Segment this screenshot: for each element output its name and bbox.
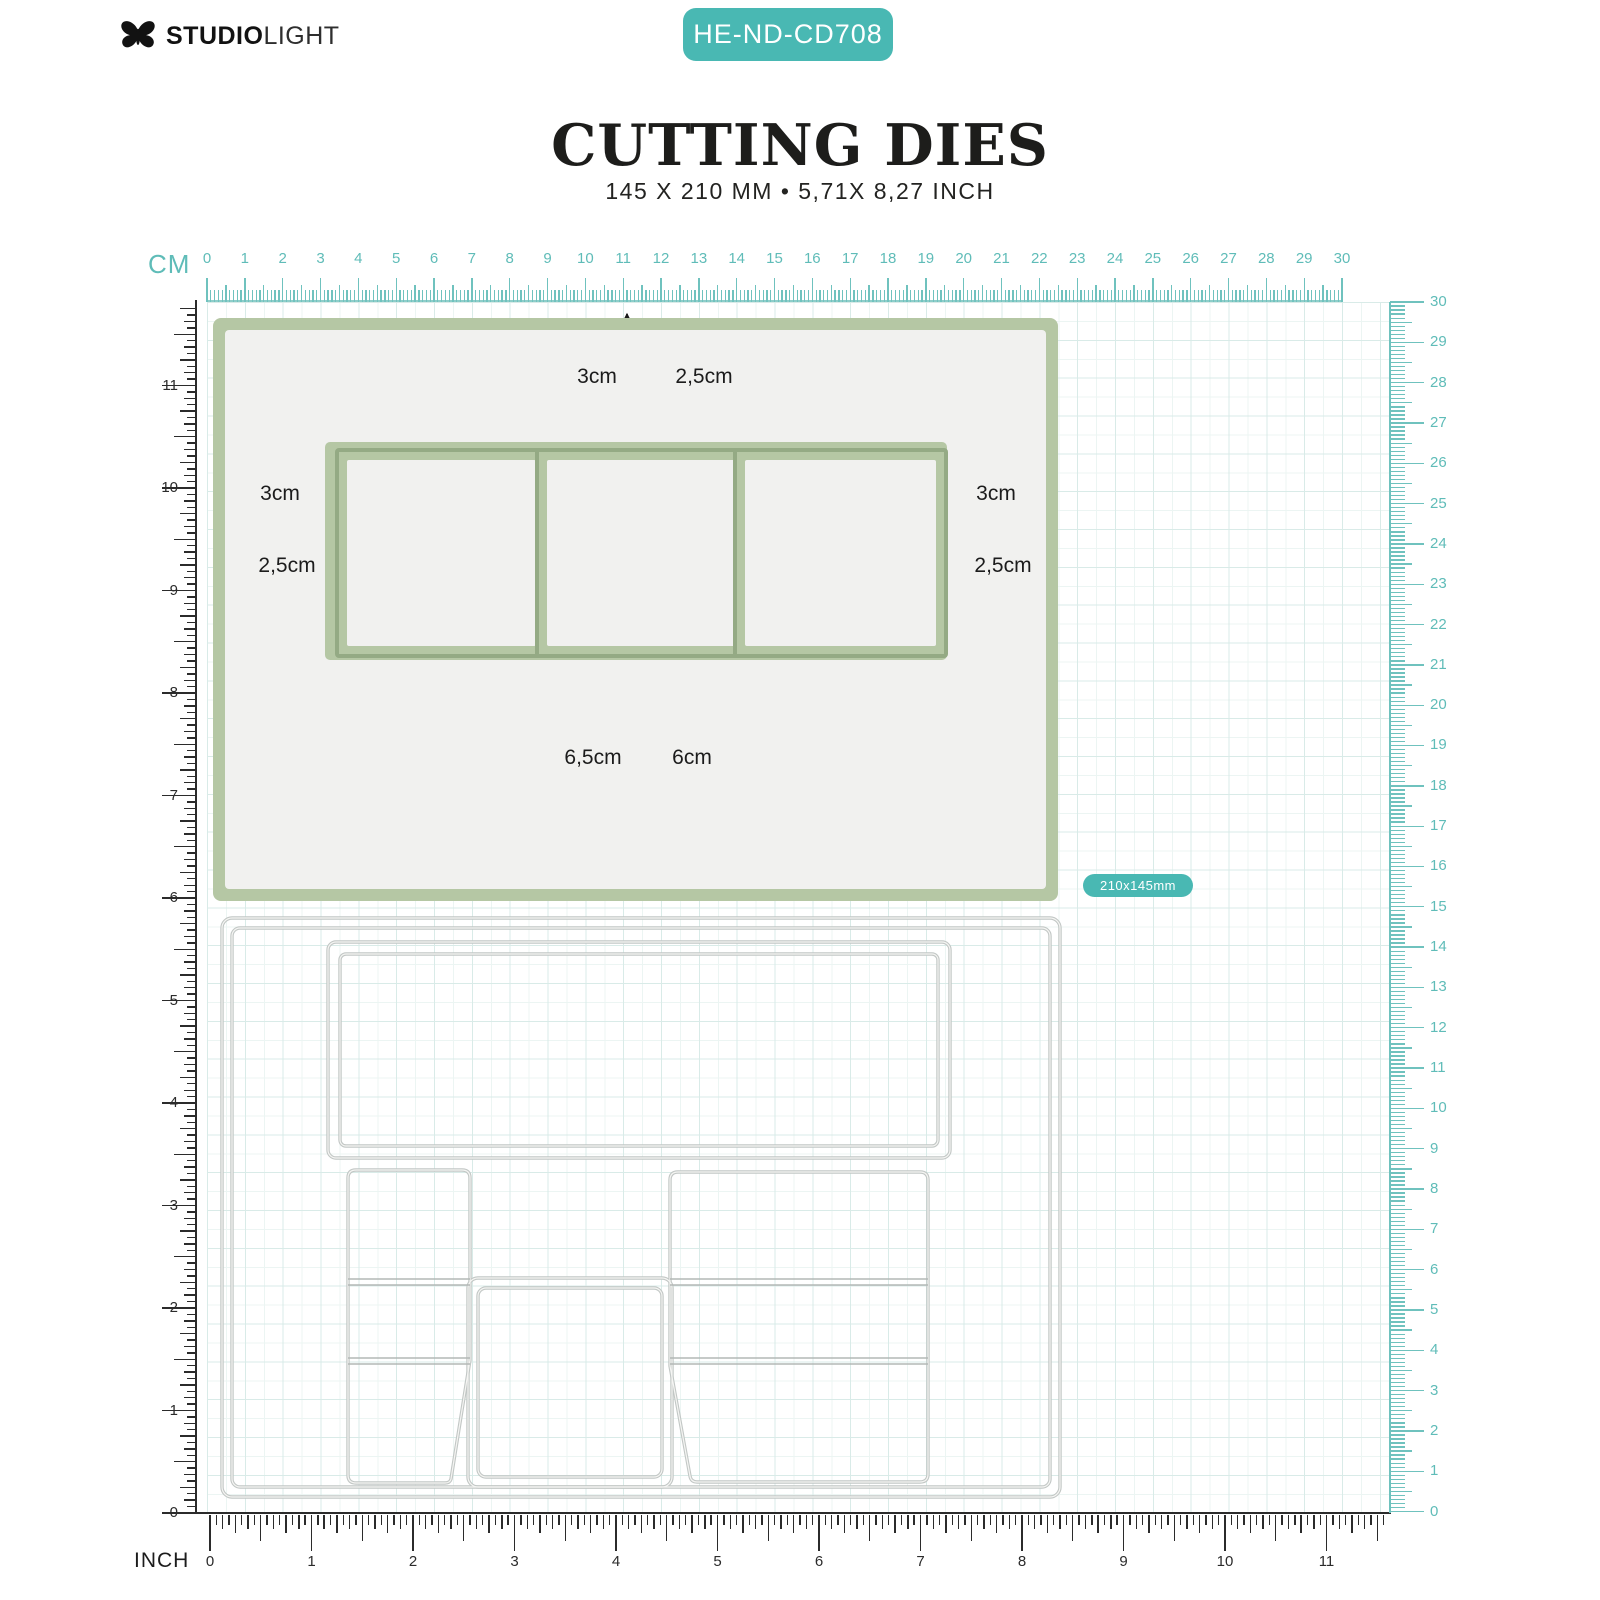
ruler-tick [1390,1378,1405,1379]
ruler-tick [1205,290,1206,302]
ruler-tick [955,290,956,302]
ruler-tick [1390,1007,1412,1008]
ruler-tick [476,1515,477,1529]
ruler-tick [1390,910,1405,911]
ruler-tick [770,290,771,302]
ruler-tick [983,1515,984,1529]
ruler-tick [1390,733,1405,734]
ruler-tick [1390,1321,1405,1322]
ruler-tick [607,290,608,302]
ruler-tick [1390,1289,1412,1290]
ruler-tick [1390,862,1405,863]
ruler-tick [1390,507,1405,508]
ruler-tick [1390,640,1405,641]
ruler-tick [1390,576,1405,577]
ruler-tick [184,1320,196,1321]
ruler-tick [978,290,979,302]
ruler-tick [971,290,972,302]
ruler-tick [1250,1515,1251,1533]
cm-number-right: 18 [1430,777,1464,795]
ruler-tick [252,290,253,302]
ruler-tick [187,1019,196,1020]
ruler-tick [180,1179,196,1180]
ruler-tick [1390,394,1405,395]
ruler-tick [1338,290,1339,302]
ruler-tick [1390,697,1405,698]
ruler-tick [1035,290,1036,302]
ruler-tick [241,1515,242,1525]
cm-number-right: 20 [1430,696,1464,714]
ruler-tick [778,290,779,302]
ruler-tick [388,290,389,302]
ruler-tick [228,1515,229,1525]
ruler-tick [222,1515,223,1529]
ruler-tick [184,833,196,834]
ruler-tick [872,290,873,302]
ruler-tick [856,1515,857,1529]
inch-number-left: 3 [140,1197,178,1215]
ruler-tick [1390,721,1405,722]
ruler-tick [1175,290,1176,302]
ruler-tick [187,545,196,546]
ruler-tick [672,1515,673,1525]
ruler-tick [1390,926,1412,927]
ruler-tick [184,1243,196,1244]
ruler-tick [926,1515,927,1525]
ruler-tick [1258,290,1259,302]
ruler-tick [1262,1515,1263,1529]
ruler-tick [1133,285,1134,302]
ruler-tick [187,1224,196,1225]
ruler-tick [174,334,196,335]
ruler-tick [1390,930,1405,931]
cm-number-top: 9 [532,250,562,268]
ruler-tick [1390,1237,1405,1238]
ruler-tick [901,1515,902,1525]
ruler-tick [1152,278,1153,302]
cm-number-right: 10 [1430,1099,1464,1117]
ruler-tick [184,654,196,655]
ruler-tick [187,981,196,982]
ruler-tick [278,290,279,302]
ruler-tick [584,1515,585,1525]
ruler-tick [187,417,196,418]
ruler-tick [577,290,578,302]
ruler-tick [1039,278,1040,302]
ruler-tick [1390,438,1405,439]
cm-number-right: 4 [1430,1341,1464,1359]
ruler-tick [623,278,624,302]
ruler-tick [1275,1515,1276,1541]
cm-number-top: 3 [305,250,335,268]
ruler-tick [1390,1047,1412,1048]
inch-number-left: 11 [140,377,178,395]
ruler-tick [187,1045,196,1046]
cm-number-right: 8 [1430,1180,1464,1198]
ruler-tick [1390,934,1405,935]
ruler-tick [1390,1479,1405,1480]
ruler-tick [1390,1491,1412,1492]
ruler-tick [305,290,306,302]
ruler-tick [237,290,238,302]
ruler-tick [691,1515,692,1533]
ruler-tick [844,1515,845,1533]
ruler-tick [558,1515,559,1525]
ruler-tick [1390,447,1405,448]
ruler-tick [187,571,196,572]
ruler-tick [1088,290,1089,302]
ruler-tick [668,290,669,302]
ruler-tick [419,1515,420,1525]
ruler-tick [1390,858,1405,859]
ruler-tick [1390,451,1405,452]
ruler-tick [1179,290,1180,302]
cm-number-right: 17 [1430,817,1464,835]
ruler-tick [1390,1406,1405,1407]
cm-number-right: 2 [1430,1422,1464,1440]
ruler-tick [1390,878,1405,879]
ruler-tick [884,290,885,302]
ruler-tick [1383,1515,1384,1525]
ruler-tick [660,1515,661,1525]
ruler-tick [475,290,476,302]
ruler-tick [838,290,839,302]
cm-number-right: 26 [1430,454,1464,472]
ruler-tick [910,290,911,302]
ruler-tick [1390,1059,1405,1060]
ruler-tick [180,308,196,309]
ruler-tick [418,290,419,302]
ruler-tick [1141,290,1142,302]
ruler-tick [1390,330,1405,331]
ruler-tick [184,885,196,886]
cm-number-top: 4 [343,250,373,268]
ruler-tick [1390,604,1412,605]
ruler-tick [187,340,196,341]
ruler-tick [1198,290,1199,302]
inch-number-bottom: 4 [601,1553,631,1571]
ruler-tick [596,290,597,302]
ruler-tick [812,1515,813,1525]
ruler-tick [1390,342,1424,343]
ruler-tick [184,1423,196,1424]
ruler-tick [414,285,415,302]
ruler-tick [717,1515,718,1551]
ruler-tick [1390,1374,1405,1375]
ruler-tick [1390,821,1405,822]
ruler-tick [1110,1515,1111,1529]
ruler-tick [1061,290,1062,302]
ruler-tick [1277,290,1278,302]
ruler-tick [184,987,196,988]
ruler-tick [187,1480,196,1481]
ruler-tick [993,290,994,302]
ruler-tick [1111,290,1112,302]
ruler-tick [292,1515,293,1525]
ruler-tick [1390,350,1405,351]
ruler-tick [505,290,506,302]
ruler-tick [1390,620,1405,621]
ruler-tick [1156,290,1157,302]
ruler-tick [1390,688,1405,689]
ruler-tick [1390,777,1405,778]
ruler-tick [1390,781,1405,782]
ruler-tick [184,1294,196,1295]
cm-number-top: 21 [986,250,1016,268]
ruler-tick [1390,1100,1405,1101]
ruler-tick [1390,918,1405,919]
cm-number-right: 19 [1430,736,1464,754]
ruler-tick [1167,290,1168,302]
ruler-tick [358,278,359,302]
ruler-tick [570,290,571,302]
ruler-tick [554,290,555,302]
ruler-tick [437,290,438,302]
ruler-tick [914,290,915,302]
ruler-tick [343,1515,344,1525]
ruler-tick [1390,491,1405,492]
ruler-tick [1390,1075,1405,1076]
dim-label-left-outer: 3cm [260,482,300,506]
ruler-tick [1256,1515,1257,1525]
ruler-tick [1390,1346,1405,1347]
ruler-tick [498,290,499,302]
ruler-tick [609,1515,610,1525]
ruler-tick [774,1515,775,1525]
cm-number-right: 0 [1430,1503,1464,1521]
ruler-tick [971,1515,972,1541]
ruler-tick [1078,1515,1079,1525]
ruler-tick [184,1090,196,1091]
ruler-tick [1390,559,1405,560]
ruler-tick [634,1515,635,1525]
ruler-tick [1174,1515,1175,1541]
ruler-tick [611,290,612,302]
ruler-tick [324,290,325,302]
ruler-tick [180,1384,196,1385]
brand-name-studio: STUDIO [166,22,263,50]
ruler-tick [1390,596,1405,597]
ruler-tick [187,955,196,956]
ruler-tick [1390,1003,1405,1004]
ruler-tick [963,278,964,302]
ruler-tick [1390,890,1405,891]
ruler-tick [1390,729,1405,730]
ruler-tick [977,1515,978,1525]
ruler-tick [1001,278,1002,302]
ruler-tick [362,1515,363,1541]
ruler-tick [187,1467,196,1468]
ruler-tick [1390,410,1405,411]
ruler-tick [184,680,196,681]
ruler-tick [1390,1438,1405,1439]
ruler-tick [184,1346,196,1347]
ruler-tick [1224,290,1225,302]
ruler-tick [180,410,196,411]
ruler-tick [1390,338,1405,339]
ruler-tick [1390,809,1405,810]
ruler-tick [184,859,196,860]
ruler-tick [441,290,442,302]
ruler-tick [958,1515,959,1529]
ruler-tick [180,872,196,873]
ruler-tick [755,1515,756,1529]
ruler-tick [868,285,869,302]
ruler-tick [187,353,196,354]
ruler-tick [1390,850,1405,851]
ruler-tick [645,290,646,302]
cm-number-top: 27 [1213,250,1243,268]
ruler-tick [218,290,219,302]
ruler-tick [1390,443,1412,444]
ruler-tick [1390,1027,1424,1028]
ruler-tick [174,949,196,950]
ruler-tick [895,290,896,302]
ruler-tick [799,1515,800,1525]
ruler-tick [939,1515,940,1525]
cm-number-top: 6 [419,250,449,268]
ruler-tick [520,290,521,302]
ruler-tick [725,290,726,302]
ruler-tick [1209,285,1210,302]
ruler-tick [297,290,298,302]
cm-number-right: 7 [1430,1220,1464,1238]
ruler-tick [406,1515,407,1525]
ruler-tick [1390,789,1405,790]
ruler-tick [187,878,196,879]
ruler-tick [282,278,283,302]
ruler-tick [539,1515,540,1533]
ruler-tick [1390,386,1405,387]
ruler-tick [1390,406,1405,407]
ruler-tick [260,1515,261,1541]
ruler-tick [293,290,294,302]
ruler-tick [1155,1515,1156,1525]
ruler-tick [392,290,393,302]
ruler-tick [619,290,620,302]
cm-number-top: 24 [1100,250,1130,268]
ruler-tick [959,290,960,302]
ruler-tick [1390,1140,1405,1141]
ruler-tick [187,673,196,674]
ruler-tick [649,290,650,302]
ruler-tick [925,278,926,302]
ruler-tick [184,526,196,527]
ruler-tick [180,1230,196,1231]
ruler-tick [721,290,722,302]
ruler-tick [1390,1426,1405,1427]
ruler-tick [1300,290,1301,302]
ruler-tick [267,290,268,302]
ruler-tick [1137,290,1138,302]
ruler-tick [524,290,525,302]
size-badge-label: 210x145mm [1100,878,1176,893]
ruler-tick [517,290,518,302]
ruler-tick [1232,290,1233,302]
ruler-tick [676,290,677,302]
ruler-tick [1390,555,1405,556]
ruler-tick [187,1391,196,1392]
ruler-tick [780,1515,781,1529]
ruler-tick [187,442,196,443]
ruler-tick [187,494,196,495]
ruler-tick [248,290,249,302]
cm-number-top: 2 [268,250,298,268]
ruler-tick [184,731,196,732]
ruler-tick [180,769,196,770]
ruler-tick [1390,1055,1405,1056]
ruler-tick [1390,313,1405,314]
ruler-tick [528,285,529,302]
ruler-tick [797,290,798,302]
ruler-tick [247,1515,248,1529]
ruler-tick [1390,1233,1405,1234]
ruler-tick [880,290,881,302]
ruler-tick [1390,1301,1405,1302]
ruler-tick [1390,676,1405,677]
ruler-tick [274,290,275,302]
ruler-tick [1390,1229,1424,1230]
ruler-tick [431,1515,432,1525]
ruler-tick [1288,1515,1289,1529]
ruler-tick [1390,664,1424,665]
cm-ruler-unit-label: CM [148,249,190,280]
ruler-tick [349,1515,350,1529]
ruler-tick [184,961,196,962]
ruler-tick [1390,1253,1405,1254]
ruler-tick [1390,434,1405,435]
ruler-tick [808,290,809,302]
ruler-tick [1390,1265,1405,1266]
ruler-tick [1390,1221,1405,1222]
ruler-tick [184,1218,196,1219]
cm-number-top: 5 [381,250,411,268]
ruler-tick [323,1515,324,1529]
ruler-tick [747,290,748,302]
ruler-tick [184,1141,196,1142]
ruler-tick [187,455,196,456]
ruler-tick [1300,1515,1301,1533]
ruler-tick [1390,1293,1405,1294]
ruler-tick [187,929,196,930]
ruler-tick [1281,290,1282,302]
ruler-tick [626,290,627,302]
ruler-tick [501,290,502,302]
ruler-tick [1319,290,1320,302]
ruler-tick [1118,290,1119,302]
ruler-tick [1390,737,1405,738]
ruler-tick [1334,290,1335,302]
ruler-tick [174,1154,196,1155]
ruler-tick [793,285,794,302]
ruler-tick [377,285,378,302]
dim-label-right-inner: 2,5cm [974,554,1031,578]
ruler-tick [653,290,654,302]
ruler-tick [180,1025,196,1026]
ruler-tick [698,278,699,302]
ruler-tick [187,507,196,508]
ruler-tick [933,290,934,302]
ruler-tick [903,290,904,302]
inch-number-bottom: 9 [1109,1553,1139,1571]
ruler-tick [399,290,400,302]
ruler-tick [1193,1515,1194,1525]
ruler-tick [894,1515,895,1533]
ruler-tick [1390,1039,1405,1040]
ruler-tick [913,1515,914,1525]
ruler-tick [174,436,196,437]
ruler-tick [1390,475,1405,476]
